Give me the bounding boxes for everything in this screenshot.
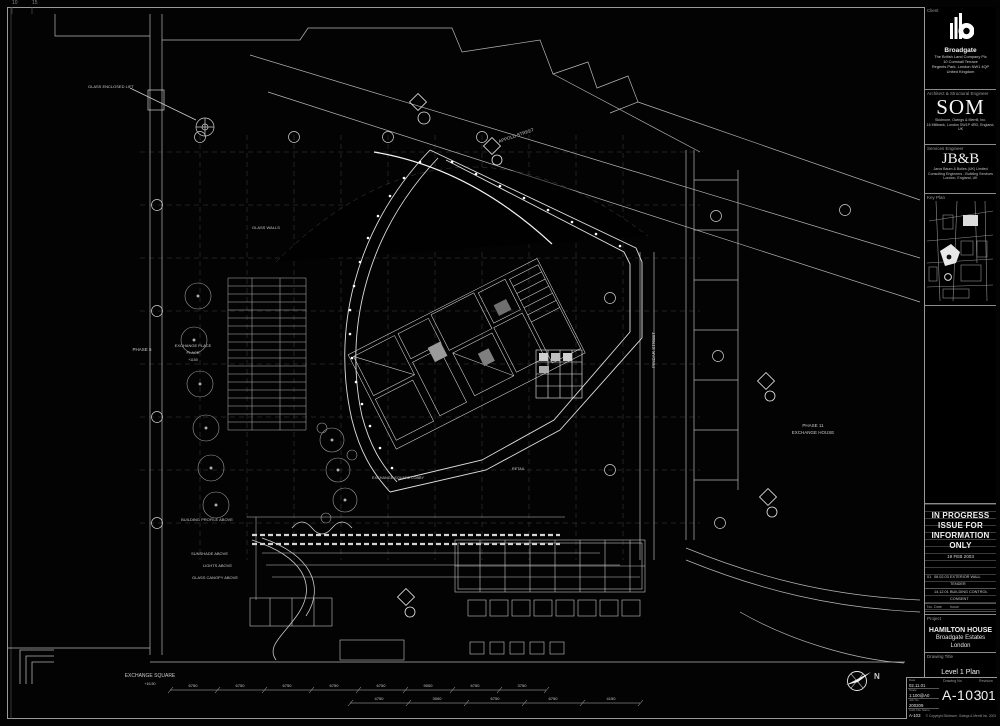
project-line: Broadgate Estates — [925, 634, 996, 642]
broadgate-logo-icon — [948, 13, 974, 41]
drawing-title: Level 1 Plan — [925, 669, 996, 676]
svg-text:6750: 6750 — [491, 696, 501, 701]
svg-text:GLASS CANOPY ABOVE: GLASS CANOPY ABOVE — [192, 575, 238, 580]
dimension-values: 6750 6750 6750 6750 6750 9000 6750 3750 … — [189, 683, 617, 701]
project-name: HAMILTON HOUSE — [925, 627, 996, 634]
revision-header-date: Date — [934, 604, 950, 611]
svg-text:6750: 6750 — [377, 683, 387, 688]
stamp-line: ISSUE FOR — [925, 521, 996, 531]
curved-walls — [252, 522, 352, 660]
progress-stamp: IN PROGRESS ISSUE FOR INFORMATION ONLY 1… — [925, 511, 996, 559]
key-plan-map — [927, 201, 995, 301]
revision-row: 14.12.01 BUILDING CONTROL CONSENT — [925, 589, 996, 604]
architect-line: 16 Millbank, London SW1P 4RD, England, U… — [925, 123, 996, 132]
drawing-no: A-103 — [942, 687, 982, 703]
drawing-no-header: Drawing No — [943, 679, 962, 683]
drawing-info-table: Date 02.11.01 Scale 1:100@A0 Job No 2002… — [908, 679, 939, 718]
svg-text:PHASE 11: PHASE 11 — [802, 423, 824, 428]
svg-text:+16.50: +16.50 — [144, 682, 155, 686]
revision-no — [925, 589, 934, 603]
svg-text:PLACE: PLACE — [186, 350, 199, 355]
svg-text:EXCHANGE SQUARE: EXCHANGE SQUARE — [125, 673, 176, 679]
services-line: London, England, UK — [925, 176, 996, 181]
svg-text:4750: 4750 — [375, 696, 385, 701]
service-yard — [250, 540, 645, 660]
revision-issue: BUILDING CONTROL CONSENT — [950, 589, 996, 603]
canopy-annotations — [247, 517, 640, 600]
revision-date: 06.02.03 — [934, 574, 950, 588]
svg-text:PHASE 5: PHASE 5 — [132, 347, 152, 352]
svg-text:3750: 3750 — [518, 683, 528, 688]
services-block: Services Engineer JB&B Jaros Baum & Boll… — [925, 144, 996, 193]
project-line: London — [925, 642, 996, 650]
svg-text:GLASS WALLS: GLASS WALLS — [252, 225, 280, 230]
keyplan-block: Key Plan — [925, 193, 996, 305]
revision-header-row: No. Date Issue — [925, 604, 996, 612]
architect-name: SOM — [925, 96, 996, 118]
svg-text:GLASS ENCLOSED LIFT: GLASS ENCLOSED LIFT — [88, 84, 134, 89]
stamp-line: IN PROGRESS — [925, 511, 996, 521]
drawing-number-block: Date 02.11.01 Scale 1:100@A0 Job No 2002… — [906, 677, 997, 719]
notes-block — [925, 305, 996, 503]
project-header: Project — [925, 615, 996, 621]
svg-text:N: N — [874, 672, 880, 681]
svg-text:6750: 6750 — [283, 683, 293, 688]
client-address-line: United Kingdom — [925, 69, 996, 74]
keyplan-header: Key Plan — [925, 194, 996, 200]
svg-text:EXCHANGE SQUARE LOBBY: EXCHANGE SQUARE LOBBY — [372, 476, 425, 480]
svg-text:EXCHANGE PLACE: EXCHANGE PLACE — [175, 343, 212, 348]
site-plan-canvas: 6750 6750 6750 6750 6750 9000 6750 3750 … — [0, 0, 924, 726]
trees — [181, 283, 357, 523]
client-block: Client Broadgate The British Land Compan… — [925, 7, 996, 89]
building-core — [348, 258, 585, 449]
architect-line: Skidmore, Owings & Merrill, Inc. — [925, 118, 996, 123]
copyright-note: © Copyright Skidmore, Owings & Merrill I… — [926, 714, 996, 718]
title-block: Client Broadgate The British Land Compan… — [924, 7, 996, 719]
revision-row: 01 06.02.03 EXTERIOR WALL TENDER — [925, 574, 996, 589]
svg-text:BUILDING PROFILE ABOVE: BUILDING PROFILE ABOVE — [181, 517, 233, 522]
svg-text:PINDAR STREET: PINDAR STREET — [651, 332, 656, 368]
svg-text:3000: 3000 — [433, 696, 443, 701]
svg-text:6750: 6750 — [330, 683, 340, 688]
drawing-title-header: Drawing Title — [925, 653, 996, 659]
dimension-lines — [168, 687, 643, 706]
svg-text:4150: 4150 — [607, 696, 617, 701]
svg-text:9000: 9000 — [424, 683, 434, 688]
project-block: Project HAMILTON HOUSE Broadgate Estates… — [925, 614, 996, 652]
client-name: Broadgate — [925, 47, 996, 54]
svg-text:EXCHANGE HOUSE: EXCHANGE HOUSE — [792, 430, 835, 435]
architect-block: Architect & Structural Engineer SOM Skid… — [925, 89, 996, 144]
revision-header-no: No. — [925, 604, 934, 611]
svg-text:LIGHTS ABOVE: LIGHTS ABOVE — [203, 563, 232, 568]
drawing-sheet: 10 15 — [0, 0, 1000, 726]
svg-text:RETAIL: RETAIL — [512, 467, 525, 471]
revision-date: 14.12.01 — [934, 589, 950, 603]
revision-header-issue: Issue — [950, 604, 996, 611]
street-lines — [8, 14, 920, 663]
stamp-date: 19 FEB 2003 — [925, 554, 996, 559]
svg-text:+1150: +1150 — [188, 358, 198, 362]
grid-lines — [140, 135, 700, 560]
services-line: Jaros Baum & Bolles (UK) Limited — [925, 167, 996, 172]
svg-text:6750: 6750 — [189, 683, 199, 688]
revision-label: Revision — [979, 679, 993, 683]
border-ticks — [11, 7, 32, 719]
stamp-line: INFORMATION ONLY — [925, 531, 996, 551]
revision-value: 01 — [981, 688, 995, 703]
north-arrow: N — [846, 672, 880, 691]
revision-no: 01 — [925, 574, 934, 588]
services-name: JB&B — [925, 151, 996, 167]
glass-lift — [130, 88, 214, 136]
corner-detail — [20, 650, 54, 684]
svg-text:APPOLD STREET: APPOLD STREET — [498, 127, 535, 144]
revision-table: 01 06.02.03 EXTERIOR WALL TENDER 14.12.0… — [925, 574, 996, 612]
svg-text:6750: 6750 — [549, 696, 559, 701]
issue-block: IN PROGRESS ISSUE FOR INFORMATION ONLY 1… — [925, 503, 996, 614]
svg-text:6750: 6750 — [471, 683, 481, 688]
revision-issue: EXTERIOR WALL TENDER — [950, 574, 996, 588]
svg-text:SUNSHADE ABOVE: SUNSHADE ABOVE — [191, 551, 228, 556]
steps — [228, 278, 306, 430]
lift-core — [536, 350, 582, 398]
svg-text:6750: 6750 — [236, 683, 246, 688]
